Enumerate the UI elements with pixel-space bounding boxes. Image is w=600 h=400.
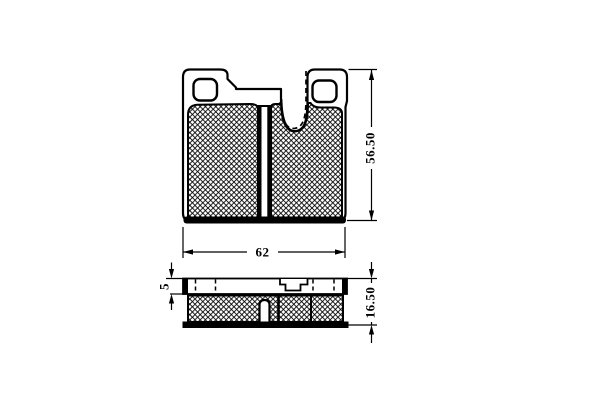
dimension-total-thickness: 16.50 [347, 262, 377, 343]
hidden-edge-dashed [282, 71, 307, 128]
arrow-down-icon [369, 269, 374, 279]
side-view: 5 16.50 [156, 262, 377, 343]
dim-height-label: 56.50 [362, 132, 377, 164]
dimension-backing-thickness: 5 [156, 263, 186, 311]
wear-slot-front [258, 105, 272, 218]
technical-drawing-canvas: 56.50 62 [0, 0, 600, 400]
mounting-hole-right [313, 81, 337, 103]
dimension-height: 56.50 [347, 70, 377, 221]
arrow-down-icon [169, 269, 174, 279]
arrow-up-icon [369, 325, 374, 335]
backplate-end-left [183, 279, 188, 295]
bottom-edge-front [184, 217, 347, 224]
bottom-edge-side [183, 322, 349, 329]
arrow-up-icon [169, 294, 174, 304]
dim-backing-thickness-label: 5 [156, 283, 171, 290]
backplate-end-right [342, 279, 347, 295]
arrow-up-icon [369, 70, 374, 80]
backplate-side [183, 279, 347, 295]
arrow-down-icon [369, 211, 374, 221]
mounting-hole-left [194, 79, 218, 101]
wear-slot-side [260, 300, 270, 323]
brake-pad-drawing: 56.50 62 [0, 0, 600, 400]
arrow-left-icon [183, 249, 193, 254]
friction-pad-left [188, 104, 258, 218]
friction-pad-right [271, 102, 342, 218]
dim-total-thickness-label: 16.50 [362, 287, 377, 319]
dim-width-label: 62 [256, 245, 270, 260]
arrow-right-icon [335, 249, 345, 254]
dimension-width: 62 [183, 227, 345, 260]
front-view: 56.50 62 [183, 70, 377, 260]
